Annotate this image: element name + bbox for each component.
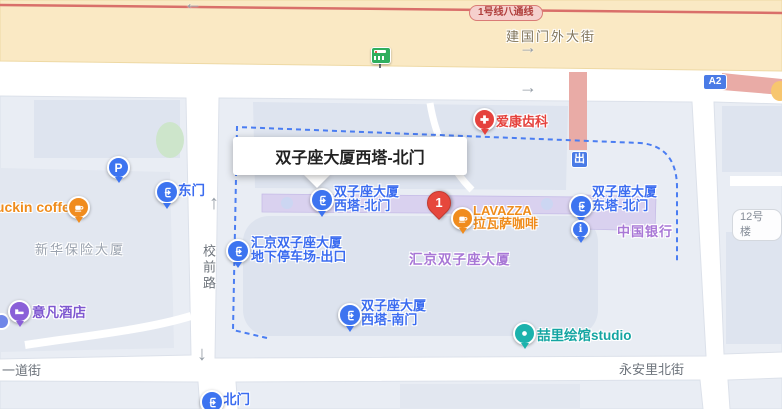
medical-cross-icon [479,114,490,125]
entrance-label-parking-exit[interactable]: 汇京双子座大厦 地下停车场-出口 [251,236,346,264]
coffee-cup-icon[interactable] [67,196,90,219]
entrance-pin-east-tower-north[interactable] [569,194,593,218]
entrance-pin-north-gate[interactable] [200,390,224,409]
studio-dot-icon[interactable] [513,322,536,345]
dot-icon [519,328,530,339]
coffee-cup-icon [73,202,84,213]
subway-line-badge[interactable]: 1号线八通线 [469,5,543,21]
entrance-label-east-tower-north[interactable]: 双子座大厦 东塔-北门 [592,185,657,213]
poi-label-aikang-dental[interactable]: 爱康齿科 [496,111,548,130]
entrance-label-west-tower-north[interactable]: 双子座大厦 西塔-北门 [334,185,399,213]
oneway-arrow-right-icon: → [519,38,537,56]
door-arrow-icon [317,195,328,206]
dental-clinic-icon[interactable] [473,108,496,131]
entrance-pin-parking-exit[interactable] [226,239,250,263]
entrance-label-east-gate[interactable]: 东门 [178,184,205,198]
info-icon[interactable]: i [571,220,590,239]
entrance-label-west-tower-south[interactable]: 双子座大厦 西塔-南门 [361,299,426,327]
parking-icon[interactable]: P [107,156,130,179]
infobox-pointer [303,174,331,188]
bed-icon [14,306,25,317]
door-arrow-icon [345,310,356,321]
street-label-xiaoqianlu: 校前路 [199,244,218,292]
street-label-yidaojie: 一道街 [2,360,41,379]
greenery-patch [156,122,184,158]
entrance-pin-west-tower-south[interactable] [338,303,362,327]
subway-exit-badge[interactable]: 出 [571,151,588,168]
oneway-arrow-down-icon: ↓ [197,344,207,364]
door-arrow-icon [207,397,218,408]
entrance-pin-east-gate[interactable] [155,180,179,204]
poi-label-zheli-studio[interactable]: 喆里绘馆studio [537,324,632,344]
oneway-arrow-right-icon: → [519,78,537,96]
hotel-bed-icon[interactable] [8,300,31,323]
infobox-title: 双子座大厦西塔-北门 [275,144,424,168]
coffee-cup-icon [457,213,468,224]
street-label-yonganli: 永安里北街 [619,359,684,378]
door-arrow-icon [576,201,587,212]
poi-label-yifan-hotel[interactable]: 意凡酒店 [32,301,86,321]
door-arrow-icon [162,187,173,198]
bus-stop-icon[interactable] [371,47,391,64]
building-label-huijing: 汇京双子座大厦 [409,248,511,268]
door-arrow-icon [233,246,244,257]
road-badge-a2: A2 [703,74,727,90]
oneway-arrow-up-icon: ↑ [209,193,219,213]
poi-label-luckin[interactable]: luckin coffee [0,201,78,214]
map-canvas[interactable]: ← 1号线八通线 建国门外大街 → → A2 出 双子座大厦西塔-北门 东门 双… [0,0,782,409]
oneway-arrow-left-icon: ← [184,0,202,12]
poi-label-lavazza-cn[interactable]: 拉瓦萨咖啡 [473,217,538,230]
selected-place-infobox[interactable]: 双子座大厦西塔-北门 [233,137,467,175]
building-label-no12: 12号楼 [732,209,782,241]
coffee-cup-icon[interactable] [451,207,474,230]
building-label-bank-of-china: 中国银行 [617,221,673,240]
entrance-label-north-gate[interactable]: 北门 [223,393,250,407]
building-label-xinhua: 新华保险大厦 [35,239,125,258]
entrance-pin-west-tower-north[interactable] [310,188,334,212]
